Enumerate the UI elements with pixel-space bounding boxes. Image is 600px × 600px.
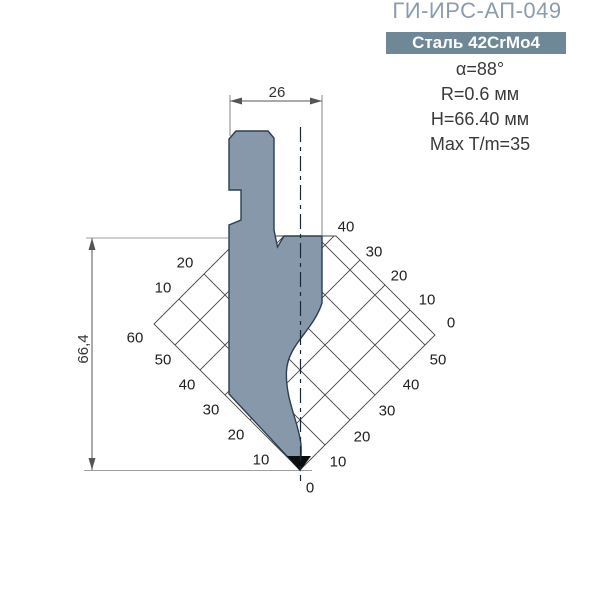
grid-scale-label-10: 10 <box>419 292 436 309</box>
punch-technical-drawing: 26 66,4 20106050403020100102030405001020… <box>0 0 600 600</box>
grid-scale-label-30: 30 <box>203 402 220 419</box>
grid-scale-label-40: 40 <box>338 219 355 236</box>
grid-scale-label-50: 50 <box>155 352 172 369</box>
punch-body <box>229 131 322 470</box>
width-dim-arrow-right <box>310 98 322 105</box>
grid-scale-label-10: 10 <box>155 280 172 297</box>
grid-scale-label-20: 20 <box>228 427 245 444</box>
grid-scale-label-20: 20 <box>391 268 408 285</box>
grid-scale-label-40: 40 <box>179 377 196 394</box>
punch-tip <box>287 456 311 471</box>
grid-scale-label-30: 30 <box>379 403 396 420</box>
width-dim-arrow-left <box>230 98 242 105</box>
grid-scale-label-50: 50 <box>430 352 447 369</box>
grid-scale-label-20: 20 <box>354 429 371 446</box>
height-dim-text: 66,4 <box>75 334 92 363</box>
grid-scale-label-60: 60 <box>127 330 144 347</box>
grid-scale-label-0: 0 <box>306 480 314 497</box>
grid-scale-label-30: 30 <box>366 244 383 261</box>
width-dim-text: 26 <box>269 84 286 101</box>
grid-scale-label-10: 10 <box>330 454 347 471</box>
drawing-page: ГИ-ИРС-АП-049 Сталь 42CrMo4 α=88° R=0.6 … <box>0 0 600 600</box>
height-dim-arrow-top <box>89 238 96 250</box>
grid-scale-label-0: 0 <box>447 315 455 332</box>
grid-scale-label-10: 10 <box>253 452 270 469</box>
grid-scale-label-40: 40 <box>403 377 420 394</box>
grid-scale-label-20: 20 <box>177 255 194 272</box>
height-dim-arrow-bottom <box>89 458 96 470</box>
